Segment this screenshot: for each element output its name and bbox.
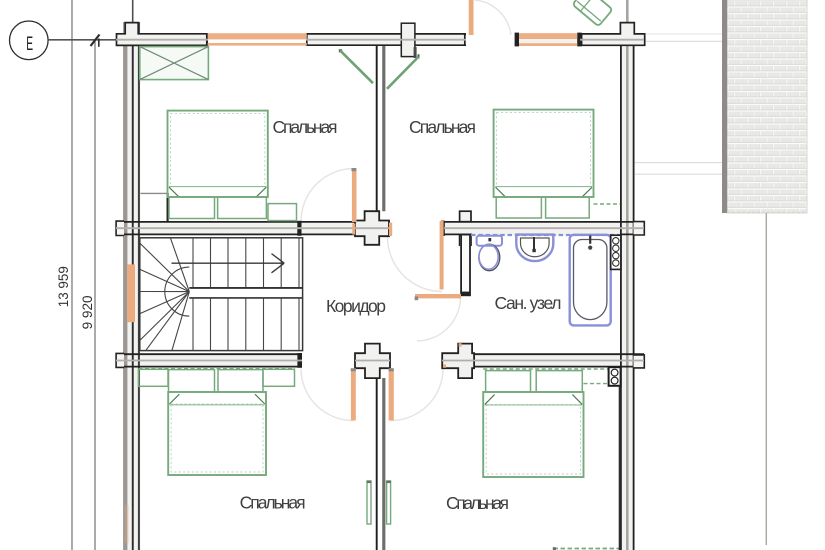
svg-text:E: E xyxy=(26,33,33,55)
svg-text:13 959: 13 959 xyxy=(56,266,71,307)
svg-text:Сан. узел: Сан. узел xyxy=(495,293,562,313)
svg-text:Спальная: Спальная xyxy=(409,117,476,137)
svg-text:Коридор: Коридор xyxy=(326,296,386,316)
svg-text:Спальная: Спальная xyxy=(273,117,338,137)
svg-text:Спальная: Спальная xyxy=(240,492,306,512)
svg-text:9 920: 9 920 xyxy=(80,295,95,329)
svg-text:Спальная: Спальная xyxy=(446,493,509,513)
